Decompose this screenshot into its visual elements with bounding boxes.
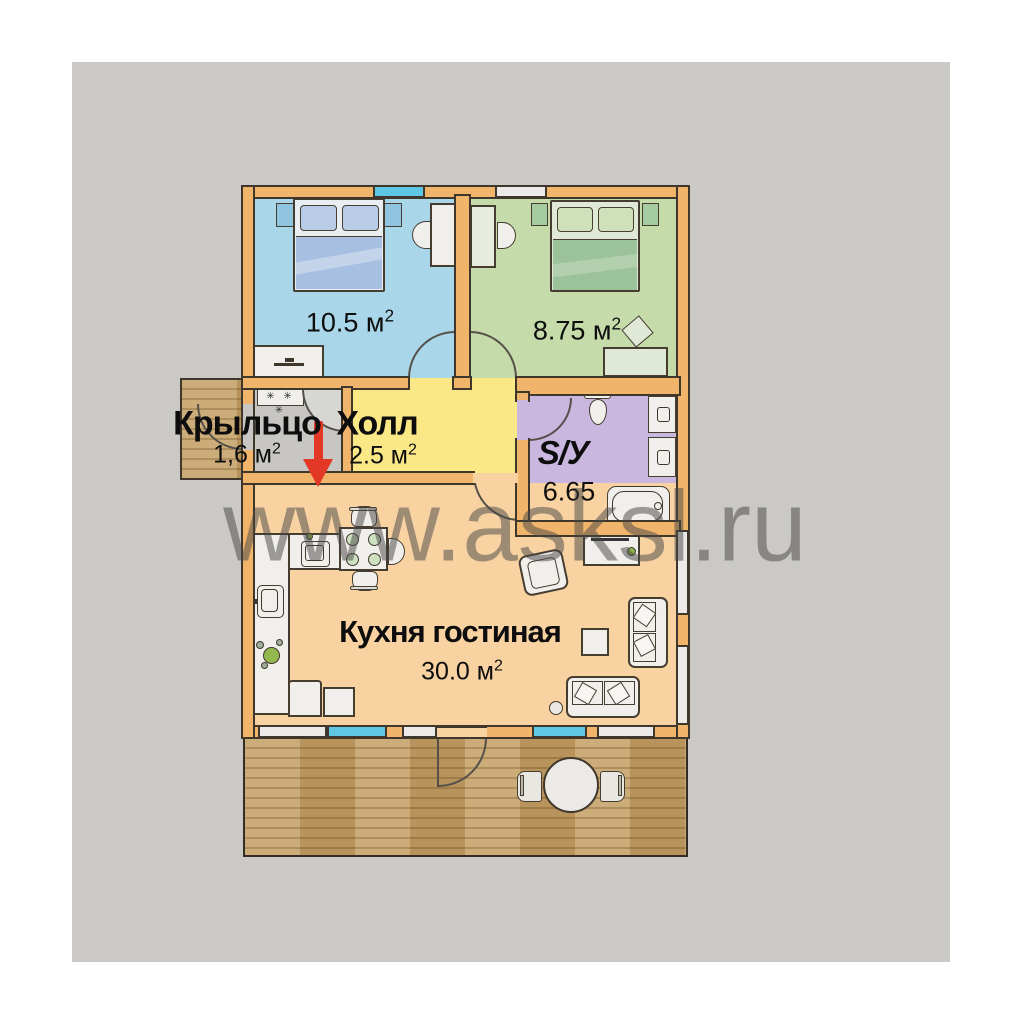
terrace-table [543, 757, 599, 813]
pillow [300, 205, 337, 231]
pillow [342, 205, 379, 231]
pillow [557, 207, 593, 232]
wall-bathroom-top [517, 378, 679, 394]
bedroom1-nightstand-left [276, 203, 294, 227]
window-bedroom1-top [373, 185, 425, 198]
hall-doorway1-floor [408, 378, 454, 388]
stool-cap [350, 586, 378, 590]
kitchen-plant-leaf [256, 641, 264, 649]
terrace-chair-right [600, 771, 625, 802]
area-value: 8.75 м [533, 316, 612, 346]
basin [261, 589, 278, 612]
terrace-door-leaf [437, 738, 439, 787]
hall-doorway2-floor [470, 378, 517, 388]
wall-bathroom-left-a [517, 393, 528, 400]
porch-area-label: 1,6 м2 [213, 440, 281, 469]
area-sup: 2 [612, 314, 622, 334]
wall-door-stub [454, 378, 470, 388]
window-bottom-1 [258, 725, 327, 738]
dresser-handle [274, 363, 304, 366]
faucet-icon [657, 407, 670, 422]
area-value: 30.0 м [421, 658, 494, 686]
kitchen-area-label: 30.0 м2 [421, 657, 503, 686]
sofa-horizontal [566, 676, 640, 718]
ottoman [549, 701, 563, 715]
bedroom1-bed [293, 198, 385, 292]
blanket [553, 239, 637, 290]
wall-bedroom-divider [456, 196, 469, 387]
bathroom-sink-upper [648, 396, 676, 433]
bedroom1-desk [430, 203, 456, 267]
kitchen-stove-sink [257, 585, 284, 618]
bedroom2-bed [550, 200, 640, 292]
porch-name-label: Крыльцо [173, 405, 321, 444]
terrace-door-opening [437, 727, 487, 737]
window-right-2 [676, 645, 689, 725]
kitchen-plant-leaf [276, 639, 283, 646]
window-bottom-3 [402, 725, 437, 738]
wall-bedroom1-bottom [243, 378, 408, 388]
area-value: 1,6 м [213, 441, 272, 469]
kitchen-name-label: Кухня гостиная [339, 614, 561, 650]
bedroom2-nightstand-left [531, 203, 548, 226]
bedroom1-area-label: 10.5 м2 [306, 306, 394, 339]
dresser-knob [285, 358, 294, 362]
coffee-table [581, 628, 609, 656]
faucet-icon [657, 450, 670, 465]
sofa-vertical [628, 597, 668, 668]
window-bottom-2 [327, 725, 387, 738]
chair-back [618, 775, 622, 796]
watermark: www.asksl.ru [223, 470, 806, 585]
area-value: 2.5 м [349, 442, 408, 470]
chair-back [520, 775, 524, 796]
area-sup: 2 [385, 306, 395, 326]
area-sup: 2 [272, 440, 281, 457]
terrace-chair-left [517, 771, 542, 802]
bedroom2-side-table [603, 347, 668, 377]
bathroom-door-opening [517, 400, 528, 440]
bathroom-name-label: S/У [538, 434, 589, 472]
bedroom1-dresser [253, 345, 324, 378]
floor-plan-image: ✳ ✳ ✳ [0, 0, 1024, 1024]
hall-name-label: Холл [336, 405, 417, 444]
window-bottom-5 [597, 725, 655, 738]
bedroom1-nightstand-right [384, 203, 402, 227]
kitchen-appliance-2 [323, 687, 355, 717]
area-sup: 2 [494, 657, 503, 674]
pillow [598, 207, 634, 232]
bedroom2-desk [470, 205, 496, 268]
area-value: 10.5 м [306, 308, 385, 338]
kitchen-plant-leaf [261, 662, 268, 669]
window-bedroom2-top [495, 185, 547, 198]
bedroom2-area-label: 8.75 м2 [533, 314, 621, 347]
hall-area-label: 2.5 м2 [349, 441, 417, 470]
window-bottom-4 [532, 725, 587, 738]
coat-hook-shelf: ✳ ✳ ✳ [257, 389, 304, 406]
kitchen-appliance-1 [288, 680, 322, 717]
bedroom2-nightstand-right [642, 203, 659, 226]
blanket [296, 236, 382, 289]
area-sup: 2 [408, 441, 417, 458]
